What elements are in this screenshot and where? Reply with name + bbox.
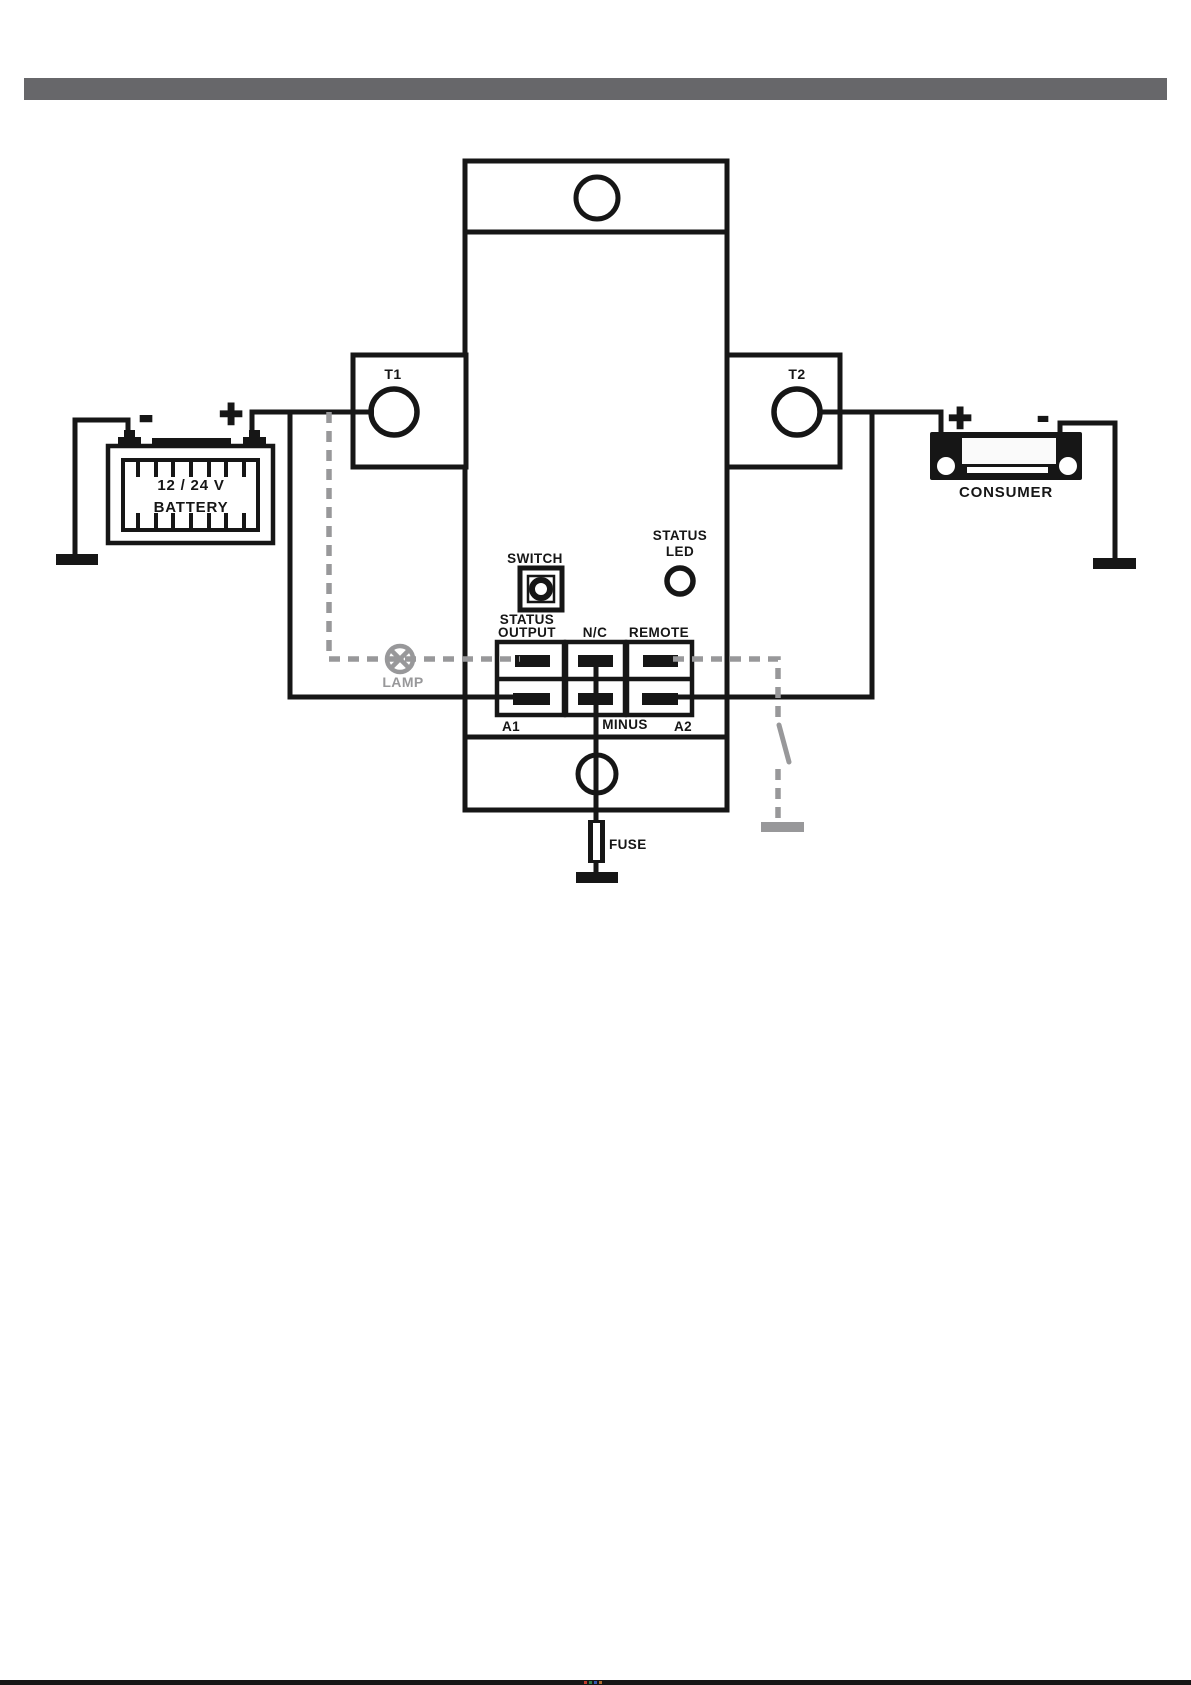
battery-plus-sign: + bbox=[219, 392, 242, 436]
status-led-label-line1: STATUS bbox=[653, 528, 707, 543]
status-led-label-line2: LED bbox=[666, 544, 694, 559]
status-output-label-line2: OUTPUT bbox=[498, 625, 556, 640]
page: T1 T2 SWITCH STATUS LED STATUS OUTPUT N/… bbox=[0, 0, 1191, 1685]
minus-label: MINUS bbox=[602, 717, 648, 732]
footer-logo-dot bbox=[599, 1681, 602, 1684]
switch-label: SWITCH bbox=[507, 551, 563, 566]
terminal-t1-label: T1 bbox=[384, 366, 401, 382]
fuse-label: FUSE bbox=[609, 837, 647, 852]
consumer: + - CONSUMER bbox=[820, 396, 1136, 569]
terminal-t2-label: T2 bbox=[788, 366, 805, 382]
nc-label: N/C bbox=[583, 625, 607, 640]
consumer-radio-slot bbox=[962, 438, 1056, 464]
consumer-knob-right-icon bbox=[1059, 457, 1077, 475]
terminal-t1-stud-icon bbox=[371, 389, 417, 435]
footer-logo-dot bbox=[589, 1681, 592, 1684]
consumer-minus-sign: - bbox=[1037, 398, 1048, 436]
battery-minus-sign: - bbox=[139, 394, 152, 438]
lamp-label: LAMP bbox=[382, 674, 423, 690]
a1-label: A1 bbox=[502, 719, 520, 734]
slot-remote bbox=[643, 655, 678, 667]
slot-status-output bbox=[515, 655, 550, 667]
remote-label: REMOTE bbox=[629, 625, 689, 640]
remote-switch-lever-icon bbox=[779, 725, 789, 762]
footer-logo-dot bbox=[584, 1681, 587, 1684]
a2-label: A2 bbox=[674, 719, 692, 734]
fuse-ground-icon bbox=[576, 872, 618, 883]
battery-ground-icon bbox=[56, 554, 98, 565]
status-led-icon bbox=[667, 568, 693, 594]
slot-a2 bbox=[642, 693, 678, 705]
terminal-t2-stud-icon bbox=[774, 389, 820, 435]
consumer-name-label: CONSUMER bbox=[959, 484, 1053, 501]
wiring-diagram: T1 T2 SWITCH STATUS LED STATUS OUTPUT N/… bbox=[0, 0, 1191, 1685]
footer-bar bbox=[0, 1680, 1191, 1685]
battery-voltage-label: 12 / 24 V bbox=[157, 477, 224, 494]
switch-button-dot-icon bbox=[532, 580, 550, 598]
consumer-knob-left-icon bbox=[937, 457, 955, 475]
battery-name-label: BATTERY bbox=[154, 499, 229, 516]
remote-ground-icon bbox=[761, 822, 804, 832]
consumer-radio-line bbox=[967, 467, 1048, 473]
footer-logo-dot bbox=[594, 1681, 597, 1684]
fuse-icon-stripe bbox=[593, 823, 600, 860]
slot-nc bbox=[578, 655, 613, 667]
mounting-hole-top-icon bbox=[576, 177, 618, 219]
consumer-ground-icon bbox=[1093, 558, 1136, 569]
